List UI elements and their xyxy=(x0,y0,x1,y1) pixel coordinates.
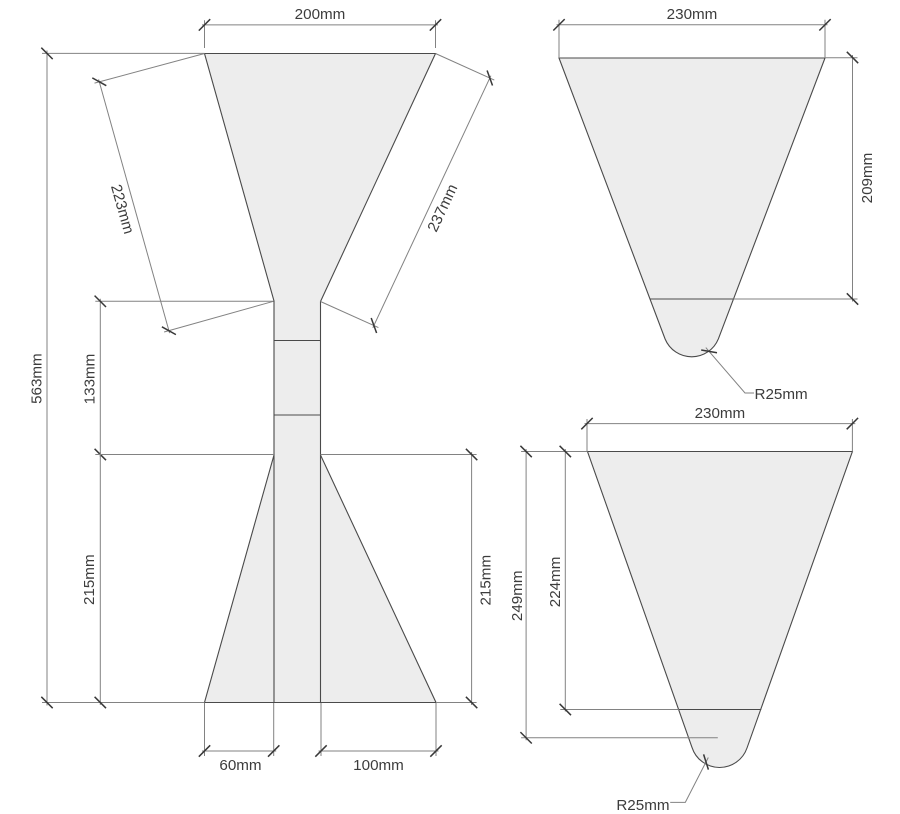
svg-text:230mm: 230mm xyxy=(695,405,746,422)
svg-text:249mm: 249mm xyxy=(509,570,526,621)
svg-text:209mm: 209mm xyxy=(859,153,876,204)
svg-text:215mm: 215mm xyxy=(478,555,495,606)
svg-text:60mm: 60mm xyxy=(219,757,261,774)
svg-text:200mm: 200mm xyxy=(295,6,346,23)
svg-text:R25mm: R25mm xyxy=(616,797,669,814)
svg-text:223mm: 223mm xyxy=(107,183,137,236)
svg-text:100mm: 100mm xyxy=(353,757,404,774)
svg-text:215mm: 215mm xyxy=(81,554,98,605)
svg-text:R25mm: R25mm xyxy=(755,386,808,403)
svg-text:563mm: 563mm xyxy=(28,353,45,404)
svg-text:237mm: 237mm xyxy=(424,182,461,235)
svg-text:230mm: 230mm xyxy=(667,6,718,23)
svg-text:224mm: 224mm xyxy=(547,557,564,608)
svg-text:133mm: 133mm xyxy=(82,354,99,405)
